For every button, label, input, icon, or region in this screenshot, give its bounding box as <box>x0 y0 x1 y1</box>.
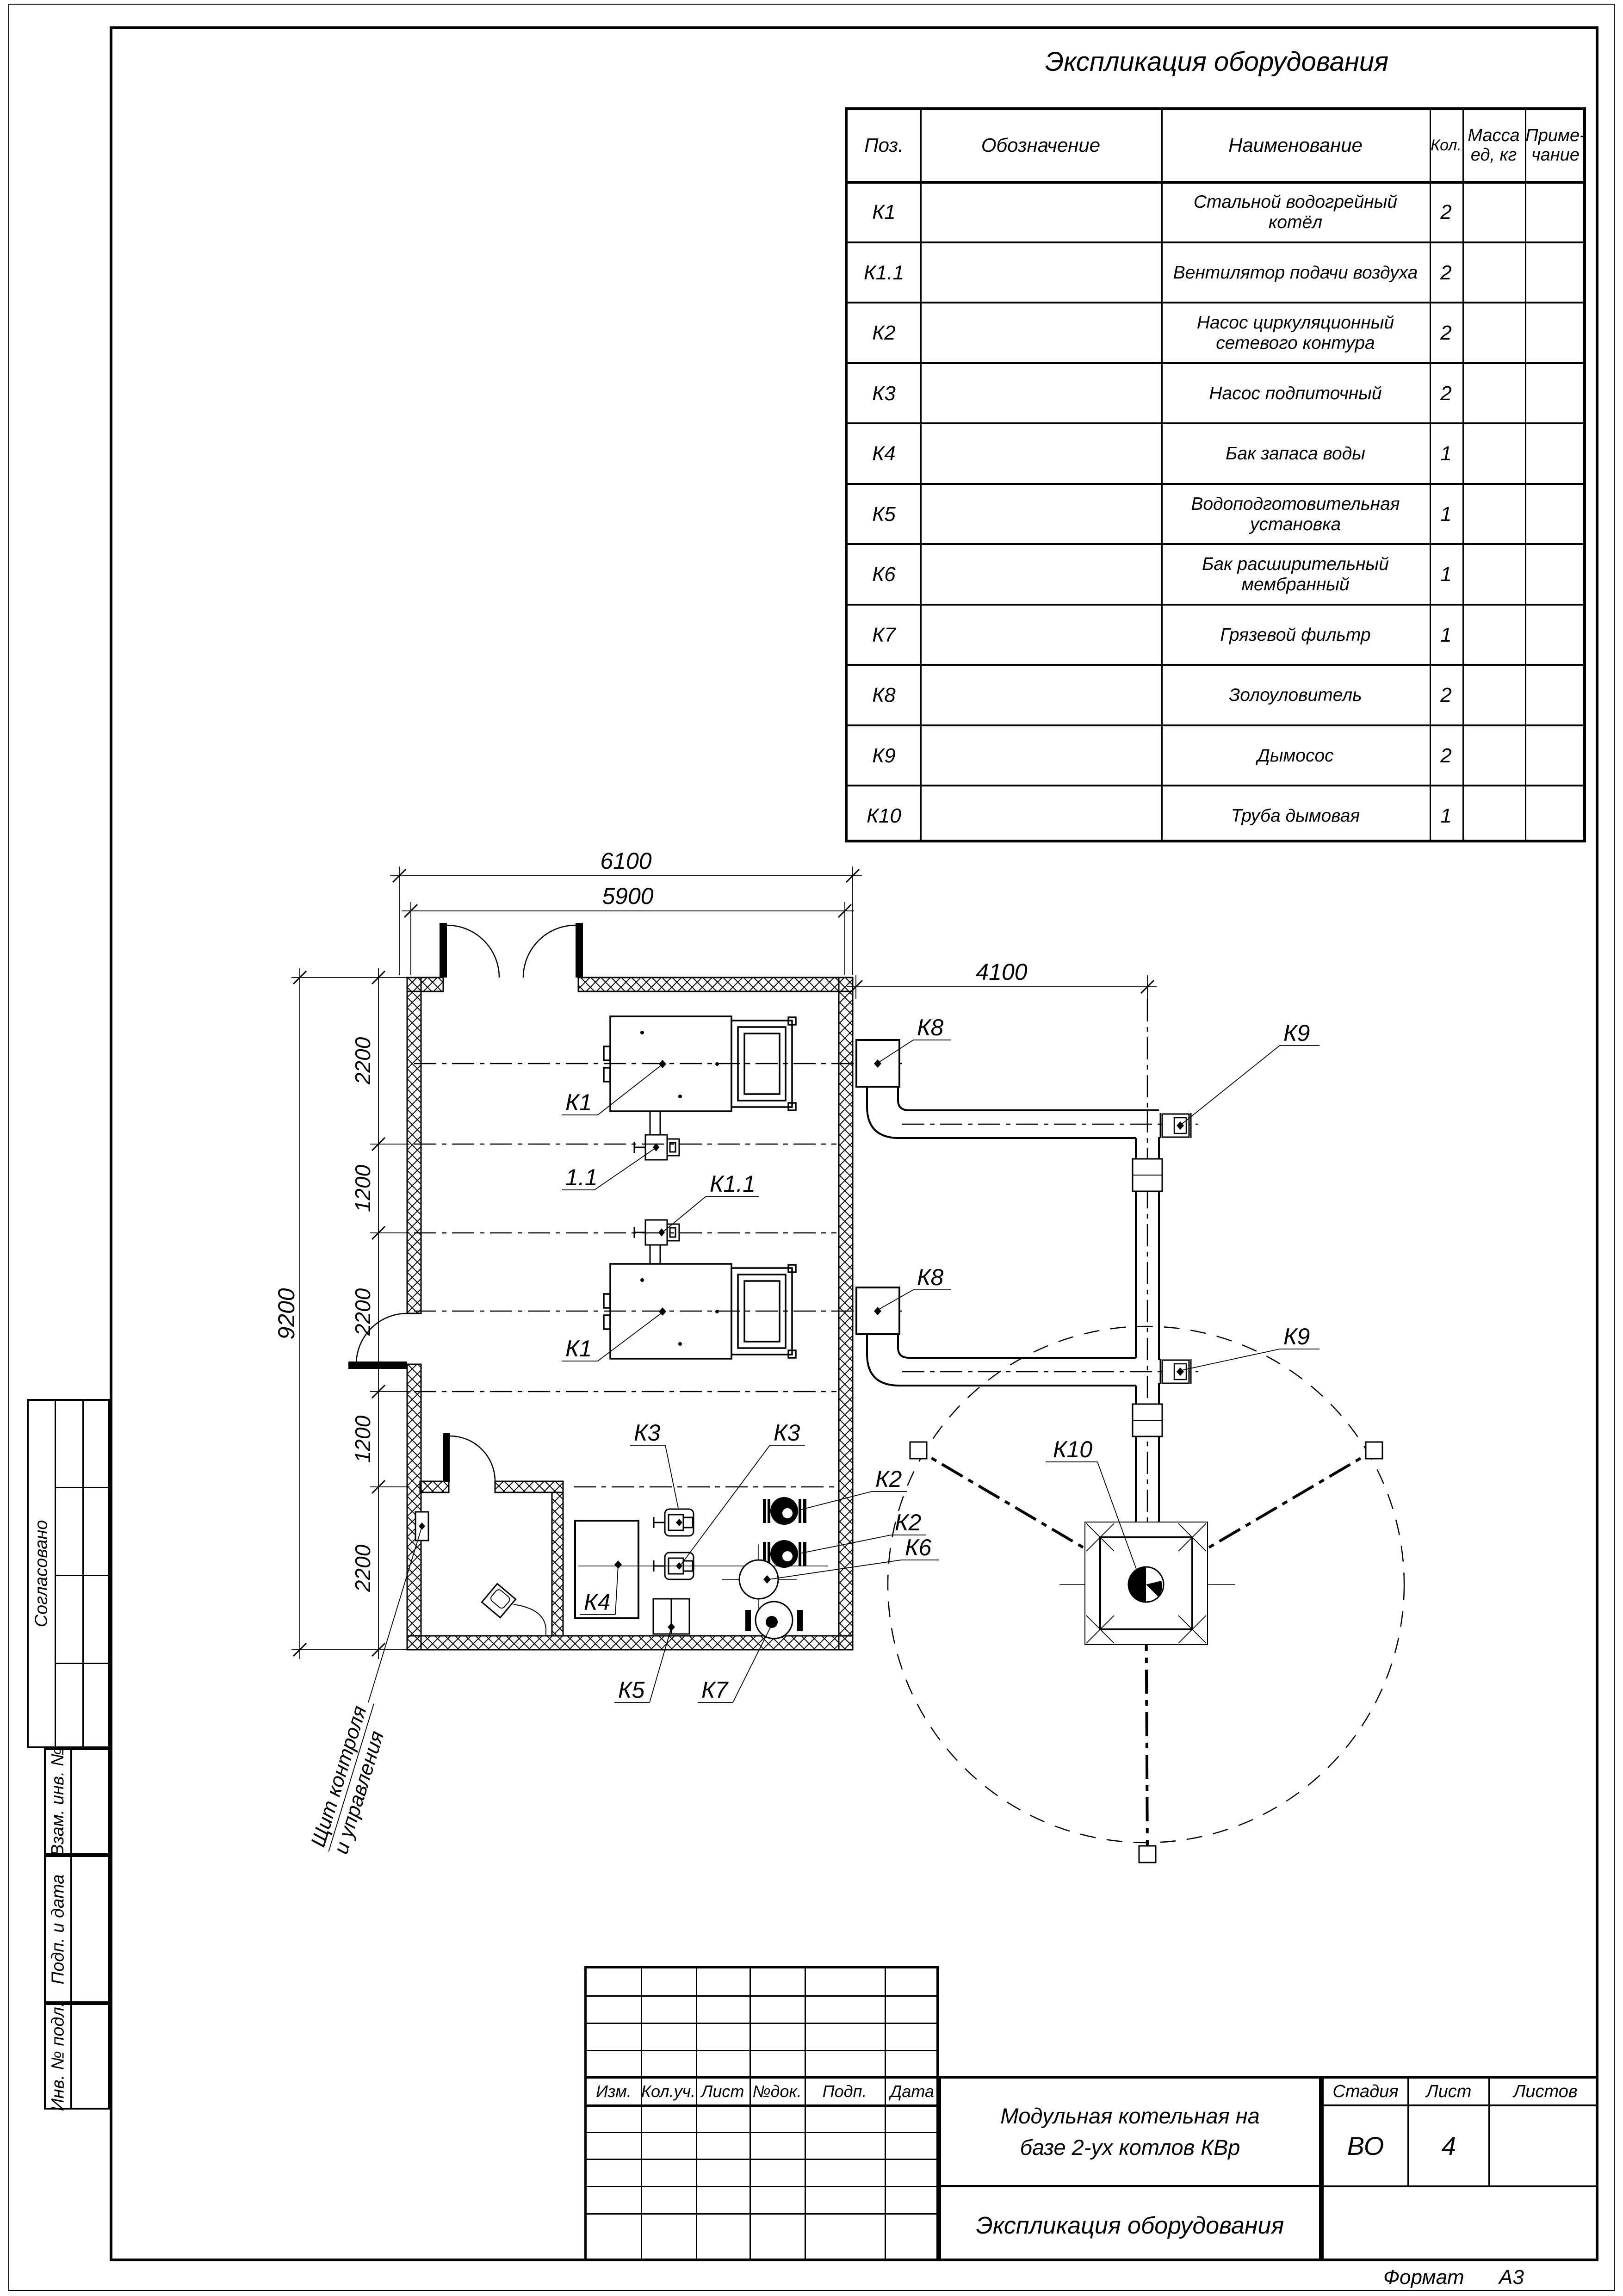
label-fan-11: 1.1 <box>565 1164 598 1190</box>
tb-col-line <box>696 1968 697 2259</box>
label-k11: К1.1 <box>710 1171 756 1197</box>
guy-anchor <box>1139 1846 1156 1863</box>
row-qty: 2 <box>1430 303 1462 362</box>
smoke-exhauster-k9-bottom <box>1160 1359 1191 1384</box>
label-k8-bottom: К8 <box>917 1264 943 1290</box>
table-row: К3 Насос подпиточный 2 <box>848 362 1586 423</box>
water-treatment-k5 <box>653 1599 689 1634</box>
row-qty: 2 <box>1430 364 1462 423</box>
tb-row-line <box>587 2213 936 2215</box>
floor-plan: 6100 5900 4100 9200 2200 1200 2200 1200 … <box>254 828 1504 1897</box>
sheet-label: Лист <box>1409 2079 1488 2104</box>
header-name: Наименование <box>1161 110 1430 181</box>
sheets-label: Листов <box>1490 2079 1601 2104</box>
tb-row-line <box>587 2023 936 2024</box>
sheet-value: 4 <box>1409 2106 1488 2185</box>
dim-2200-1: 2200 <box>351 1037 375 1085</box>
tb-col-line <box>641 1968 642 2259</box>
row-qty: 1 <box>1430 485 1462 544</box>
title-block-name: Модульная котельная на базе 2-ух котлов … <box>939 2076 1321 2261</box>
format-value: А3 <box>1499 2266 1524 2289</box>
partition-door <box>443 1433 495 1482</box>
dim-4100: 4100 <box>976 959 1027 985</box>
air-fan-11 <box>634 1111 679 1160</box>
table-row: К9 Дымосос 2 <box>848 724 1586 785</box>
project-name: Модульная котельная на базе 2-ух котлов … <box>941 2079 1319 2185</box>
tb-row-line-thick <box>587 2104 936 2107</box>
project-name-line2: базе 2-ух котлов КВр <box>1020 2132 1240 2163</box>
agreed-block: Согласовано <box>27 1399 110 1748</box>
label-k3-left: К3 <box>634 1420 660 1446</box>
row-qty: 2 <box>1430 666 1462 724</box>
project-name-line1: Модульная котельная на <box>1000 2100 1260 2132</box>
label-k2-bottom: К2 <box>895 1510 921 1535</box>
tb-row-line <box>587 2159 936 2160</box>
header-qty: Кол. <box>1430 110 1462 181</box>
row-pos: К3 <box>848 364 920 423</box>
row-pos: К7 <box>848 606 920 664</box>
dim-5900: 5900 <box>602 883 653 909</box>
table-row: К7 Грязевой фильтр 1 <box>848 604 1586 664</box>
doc-title: Экспликация оборудования <box>941 2187 1319 2264</box>
header-note-line1: Приме- <box>1525 126 1586 146</box>
replace-inv-divider <box>70 1750 72 1853</box>
tb-col-ndok: №док. <box>750 2079 805 2104</box>
row-pos: К1 <box>848 183 920 241</box>
sign-date-block: Подп. и дата <box>44 1855 110 2003</box>
label-k1-bottom: К1 <box>565 1336 592 1362</box>
title-block-left: Изм. Кол.уч. Лист №док. Подп. Дата <box>584 1966 939 2261</box>
sink <box>482 1584 515 1617</box>
inv-orig-label: Инв. № подл. <box>48 2002 68 2111</box>
row-name: Вентилятор подачи воздуха <box>1161 243 1430 302</box>
row-pos: К1.1 <box>848 243 920 302</box>
spec-table-title: Экспликация оборудования <box>995 46 1439 77</box>
agreed-col-line <box>55 1401 56 1746</box>
row-name: Бак расширительный мембранный <box>1161 545 1430 604</box>
label-k10: К10 <box>1053 1436 1092 1462</box>
dirt-filter-k7 <box>745 1602 803 1639</box>
sheets-value <box>1490 2106 1601 2185</box>
row-qty: 2 <box>1430 183 1462 241</box>
label-k1-top: К1 <box>565 1089 592 1115</box>
chimney-k10 <box>1085 1522 1208 1645</box>
entrance-door <box>440 923 583 978</box>
tb-col-data: Дата <box>885 2079 940 2104</box>
row-qty: 1 <box>1430 424 1462 483</box>
smoke-exhauster-k9-top <box>1160 1113 1191 1138</box>
label-k9-top: К9 <box>1283 1020 1310 1046</box>
row-qty: 1 <box>1430 606 1462 664</box>
agreed-row-line <box>55 1575 112 1576</box>
tb-col-koluch: Кол.уч. <box>641 2079 696 2104</box>
row-name: Стальной водогрейный котёл <box>1161 183 1430 241</box>
table-row: К1.1 Вентилятор подачи воздуха 2 <box>848 241 1586 302</box>
row-name: Бак запаса воды <box>1161 424 1430 483</box>
dim-2200-2: 2200 <box>351 1288 375 1336</box>
dim-2200-3: 2200 <box>351 1544 375 1592</box>
dim-9200: 9200 <box>273 1288 299 1339</box>
label-k6: К6 <box>905 1535 931 1560</box>
tb-col-podp: Подп. <box>805 2079 885 2104</box>
label-k3-right: К3 <box>774 1420 800 1446</box>
row-name: Золоуловитель <box>1161 666 1430 724</box>
tb-col-line <box>885 1968 886 2259</box>
inv-orig-divider <box>70 2005 72 2108</box>
dim-1200-2: 1200 <box>351 1415 375 1463</box>
format-label: Формат <box>1383 2266 1464 2289</box>
control-panel-annotation: Щит контроля и управления <box>306 1697 396 1858</box>
tb-col-izm: Изм. <box>587 2079 641 2104</box>
pump-k3-top <box>654 1509 694 1536</box>
label-k5: К5 <box>618 1677 644 1703</box>
air-fan-k11 <box>634 1220 679 1264</box>
tb-row-line <box>587 1995 936 1997</box>
row-qty: 2 <box>1430 243 1462 302</box>
label-k7: К7 <box>701 1677 729 1703</box>
tb-col-line <box>805 1968 806 2259</box>
sign-date-divider <box>70 1857 72 2001</box>
label-k2-top: К2 <box>875 1466 902 1492</box>
row-pos: К9 <box>848 726 920 785</box>
label-k8-top: К8 <box>917 1015 943 1040</box>
header-mass-line1: Масса <box>1468 126 1519 146</box>
row-name: Насос циркуляционный сетевого контура <box>1161 303 1430 362</box>
drawing-sheet: Экспликация оборудования Поз. Обозначени… <box>0 0 1623 2296</box>
table-row: К2 Насос циркуляционный сетевого контура… <box>848 302 1586 362</box>
stage-label: Стадия <box>1324 2079 1407 2104</box>
header-designation: Обозначение <box>920 110 1161 181</box>
tb-row-line <box>587 2186 936 2187</box>
agreed-label: Согласовано <box>32 1520 52 1628</box>
pump-k2-top <box>763 1497 806 1525</box>
sign-date-label: Подп. и дата <box>48 1874 68 1984</box>
label-k9-bottom: К9 <box>1283 1324 1310 1349</box>
spec-table: Поз. Обозначение Наименование Кол. Масса… <box>845 107 1586 842</box>
table-row: К1 Стальной водогрейный котёл 2 <box>848 181 1586 241</box>
ash-catcher-k8-top <box>856 1040 899 1087</box>
agreed-row-line <box>55 1663 112 1664</box>
row-pos: К5 <box>848 485 920 544</box>
inv-orig-block: Инв. № подл. <box>44 2003 110 2110</box>
sink-drain-pipe <box>514 1604 546 1636</box>
table-row: К4 Бак запаса воды 1 <box>848 422 1586 483</box>
row-name: Дымосос <box>1161 726 1430 785</box>
header-note: Приме- чание <box>1525 110 1586 181</box>
title-block-stage: Стадия Лист Листов ВО 4 <box>1321 2076 1598 2261</box>
dim-1200-1: 1200 <box>351 1164 375 1212</box>
replace-inv-label: Взам. инв. № <box>48 1747 68 1856</box>
dim-6100: 6100 <box>600 848 651 874</box>
table-row: К5 Водоподготовительная установка 1 <box>848 483 1586 544</box>
header-mass-line2: ед, кг <box>1471 146 1517 165</box>
ash-catcher-k8-bottom <box>856 1287 899 1334</box>
table-row: К6 Бак расширительный мембранный 1 <box>848 543 1586 604</box>
control-cabinet <box>415 1512 428 1541</box>
row-pos: К6 <box>848 545 920 604</box>
tb-row-line <box>587 2132 936 2133</box>
table-row: К8 Золоуловитель 2 <box>848 664 1586 724</box>
tb-stage-row <box>1324 2185 1596 2187</box>
tb-col-line <box>750 1968 751 2259</box>
replace-inv-block: Взам. инв. № <box>44 1748 110 1855</box>
row-pos: К2 <box>848 303 920 362</box>
row-name: Грязевой фильтр <box>1161 606 1430 664</box>
stage-value: ВО <box>1324 2106 1407 2185</box>
header-note-line2: чание <box>1531 146 1580 165</box>
row-name: Водоподготовительная установка <box>1161 485 1430 544</box>
row-pos: К8 <box>848 666 920 724</box>
row-qty: 1 <box>1430 545 1462 604</box>
agreed-col-line <box>82 1401 84 1746</box>
guy-anchor <box>910 1442 927 1459</box>
expansion-tank-k6 <box>739 1560 778 1599</box>
header-pos: Поз. <box>848 110 920 181</box>
row-qty: 2 <box>1430 726 1462 785</box>
tb-row-line <box>587 2050 936 2051</box>
row-pos: К4 <box>848 424 920 483</box>
tb-col-list: Лист <box>696 2079 750 2104</box>
label-k4: К4 <box>584 1589 610 1615</box>
header-mass: Масса ед, кг <box>1462 110 1525 181</box>
agreed-row-line <box>55 1487 112 1488</box>
guy-anchor <box>1366 1442 1382 1459</box>
row-name: Насос подпиточный <box>1161 364 1430 423</box>
